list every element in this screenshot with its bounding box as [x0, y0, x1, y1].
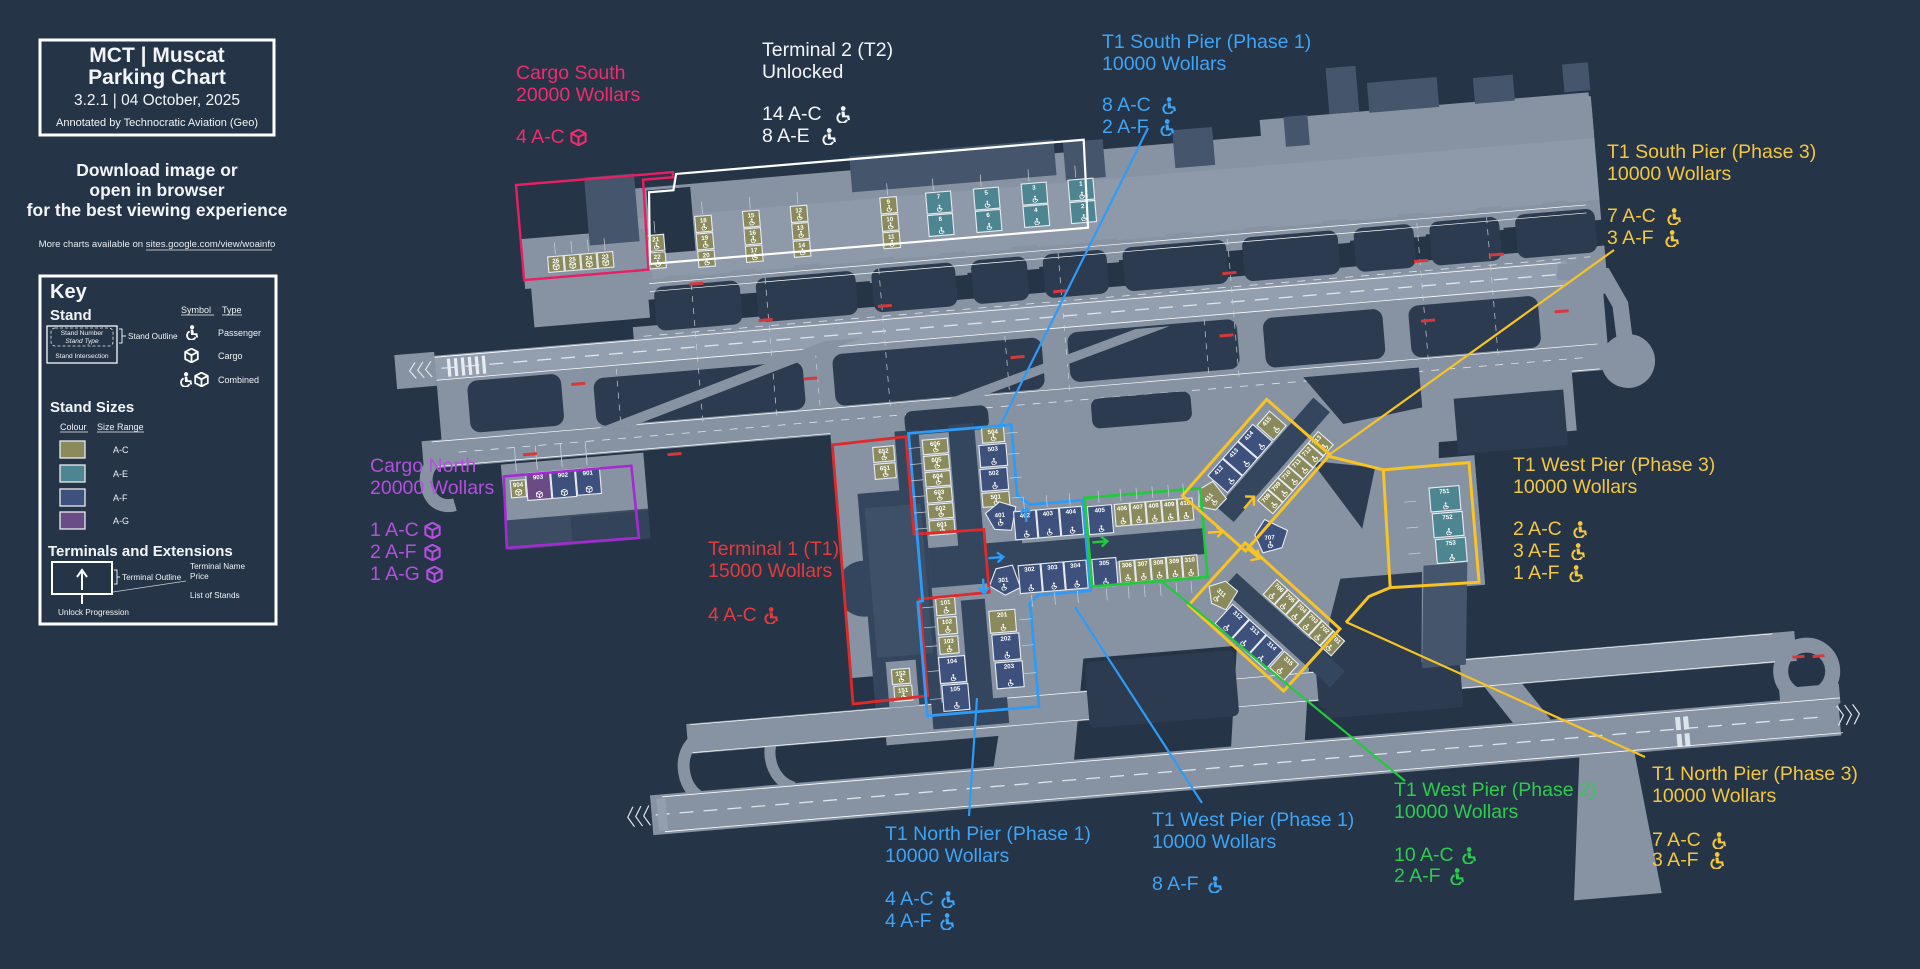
svg-text:7 A-C: 7 A-C [1607, 205, 1656, 227]
svg-text:753: 753 [1445, 539, 1456, 547]
svg-text:Colour: Colour [60, 422, 87, 432]
svg-text:Cargo South: Cargo South [516, 62, 626, 84]
svg-text:A-G: A-G [113, 516, 129, 526]
svg-text:10000 Wollars: 10000 Wollars [1102, 53, 1227, 75]
svg-text:Download image or: Download image or [76, 160, 238, 180]
svg-text:Stand: Stand [50, 307, 92, 324]
svg-text:T1 West Pier (Phase 1): T1 West Pier (Phase 1) [1152, 809, 1354, 831]
svg-text:Stand Number: Stand Number [61, 330, 104, 337]
svg-text:401: 401 [994, 512, 1005, 520]
svg-text:8 A-E: 8 A-E [762, 125, 810, 147]
svg-text:Annotated by Technocratic Avia: Annotated by Technocratic Aviation (Geo) [56, 117, 258, 129]
svg-text:201: 201 [997, 611, 1008, 619]
svg-text:MCT | Muscat: MCT | Muscat [89, 44, 224, 67]
svg-text:102: 102 [942, 618, 953, 626]
svg-text:103: 103 [943, 638, 954, 646]
svg-text:Stand Sizes: Stand Sizes [50, 399, 134, 416]
svg-text:3 A-F: 3 A-F [1607, 227, 1654, 249]
svg-text:Terminals and Extensions: Terminals and Extensions [48, 543, 233, 560]
svg-text:308: 308 [1153, 559, 1164, 567]
svg-text:Terminal Name: Terminal Name [190, 562, 245, 571]
svg-text:T1 North Pier (Phase 3): T1 North Pier (Phase 3) [1652, 763, 1858, 785]
svg-text:3 A-F: 3 A-F [1652, 849, 1699, 871]
svg-text:305: 305 [1099, 560, 1110, 568]
svg-text:202: 202 [1000, 635, 1011, 643]
svg-text:14 A-C: 14 A-C [762, 103, 822, 125]
svg-text:Cargo North: Cargo North [370, 455, 476, 477]
svg-text:904: 904 [513, 481, 524, 489]
svg-text:752: 752 [1442, 514, 1453, 522]
svg-text:2 A-C: 2 A-C [1513, 518, 1562, 540]
svg-text:Terminal 2 (T2): Terminal 2 (T2) [762, 39, 893, 61]
svg-text:502: 502 [988, 469, 999, 477]
svg-text:409: 409 [1164, 501, 1175, 509]
svg-text:8 A-F: 8 A-F [1152, 873, 1199, 895]
svg-text:4 A-C: 4 A-C [708, 604, 757, 626]
svg-text:304: 304 [1070, 562, 1081, 570]
svg-text:751: 751 [1439, 488, 1450, 496]
svg-text:406: 406 [1117, 505, 1128, 513]
svg-text:Size Range: Size Range [97, 422, 144, 432]
svg-text:20000 Wollars: 20000 Wollars [370, 477, 495, 499]
svg-text:More charts available on sites: More charts available on sites.google.co… [39, 239, 276, 250]
svg-text:Cargo: Cargo [218, 351, 243, 361]
svg-text:301: 301 [998, 577, 1009, 585]
svg-text:101: 101 [940, 599, 951, 607]
svg-text:A-F: A-F [113, 493, 128, 503]
svg-text:A-E: A-E [113, 469, 128, 479]
svg-text:7 A-C: 7 A-C [1652, 829, 1701, 851]
svg-text:1 A-G: 1 A-G [370, 563, 420, 585]
svg-text:3 A-E: 3 A-E [1513, 540, 1561, 562]
svg-text:707: 707 [1264, 534, 1275, 542]
svg-text:105: 105 [950, 685, 961, 693]
svg-text:Unlock Progression: Unlock Progression [58, 608, 129, 617]
svg-text:8 A-C: 8 A-C [1102, 94, 1151, 116]
svg-text:15000 Wollars: 15000 Wollars [708, 560, 833, 582]
svg-text:10000 Wollars: 10000 Wollars [1394, 801, 1519, 823]
svg-text:302: 302 [1024, 566, 1035, 574]
svg-text:Terminal Outline: Terminal Outline [122, 573, 182, 582]
svg-text:Stand Intersection: Stand Intersection [55, 353, 108, 360]
svg-text:Key: Key [50, 281, 88, 303]
svg-text:Combined: Combined [218, 375, 259, 385]
svg-text:10000 Wollars: 10000 Wollars [1652, 785, 1777, 807]
svg-text:Type: Type [222, 305, 242, 315]
svg-text:Terminal 1 (T1): Terminal 1 (T1) [708, 538, 839, 560]
svg-text:1 A-C: 1 A-C [370, 519, 419, 541]
svg-text:Symbol: Symbol [181, 305, 211, 315]
svg-text:203: 203 [1004, 663, 1015, 671]
svg-text:3.2.1 | 04 October, 2025: 3.2.1 | 04 October, 2025 [74, 92, 240, 109]
svg-text:20000 Wollars: 20000 Wollars [516, 84, 641, 106]
svg-text:306: 306 [1121, 562, 1132, 570]
svg-text:open in browser: open in browser [89, 180, 224, 200]
svg-text:310: 310 [1184, 556, 1195, 564]
svg-text:T1 West Pier (Phase 3): T1 West Pier (Phase 3) [1513, 454, 1715, 476]
svg-text:405: 405 [1094, 507, 1105, 515]
svg-text:T1 South Pier (Phase 1): T1 South Pier (Phase 1) [1102, 31, 1311, 53]
svg-text:10000 Wollars: 10000 Wollars [1513, 476, 1638, 498]
svg-text:2 A-F: 2 A-F [370, 541, 417, 563]
svg-text:408: 408 [1148, 502, 1159, 510]
svg-text:309: 309 [1169, 558, 1180, 566]
svg-text:Parking Chart: Parking Chart [88, 66, 226, 89]
svg-text:404: 404 [1065, 508, 1076, 516]
svg-text:10000 Wollars: 10000 Wollars [885, 845, 1010, 867]
svg-text:for the best viewing experienc: for the best viewing experience [27, 200, 288, 220]
svg-text:Passenger: Passenger [218, 328, 261, 338]
svg-text:10 A-C: 10 A-C [1394, 844, 1454, 866]
svg-text:303: 303 [1047, 564, 1058, 572]
svg-text:1 A-F: 1 A-F [1513, 562, 1560, 584]
svg-text:Price: Price [190, 572, 209, 581]
svg-text:10000 Wollars: 10000 Wollars [1152, 831, 1277, 853]
svg-text:Stand Type: Stand Type [65, 338, 99, 345]
svg-text:T1 West Pier (Phase 2): T1 West Pier (Phase 2) [1394, 779, 1596, 801]
svg-text:407: 407 [1132, 504, 1143, 512]
svg-text:2 A-F: 2 A-F [1394, 865, 1441, 887]
svg-text:List of Stands: List of Stands [190, 591, 240, 600]
svg-text:4 A-C: 4 A-C [516, 126, 565, 148]
svg-text:10000 Wollars: 10000 Wollars [1607, 163, 1732, 185]
svg-text:Unlocked: Unlocked [762, 61, 843, 83]
svg-text:4 A-C: 4 A-C [885, 888, 934, 910]
svg-text:2 A-F: 2 A-F [1102, 116, 1149, 138]
svg-text:4 A-F: 4 A-F [885, 910, 932, 932]
svg-text:A-C: A-C [113, 445, 129, 455]
svg-text:307: 307 [1137, 560, 1148, 568]
svg-text:T1 South Pier (Phase 3): T1 South Pier (Phase 3) [1607, 141, 1816, 163]
svg-text:403: 403 [1042, 510, 1053, 518]
svg-text:Stand Outline: Stand Outline [128, 332, 178, 341]
svg-text:104: 104 [946, 658, 957, 666]
svg-text:503: 503 [987, 445, 998, 453]
svg-text:T1 North Pier (Phase 1): T1 North Pier (Phase 1) [885, 823, 1091, 845]
